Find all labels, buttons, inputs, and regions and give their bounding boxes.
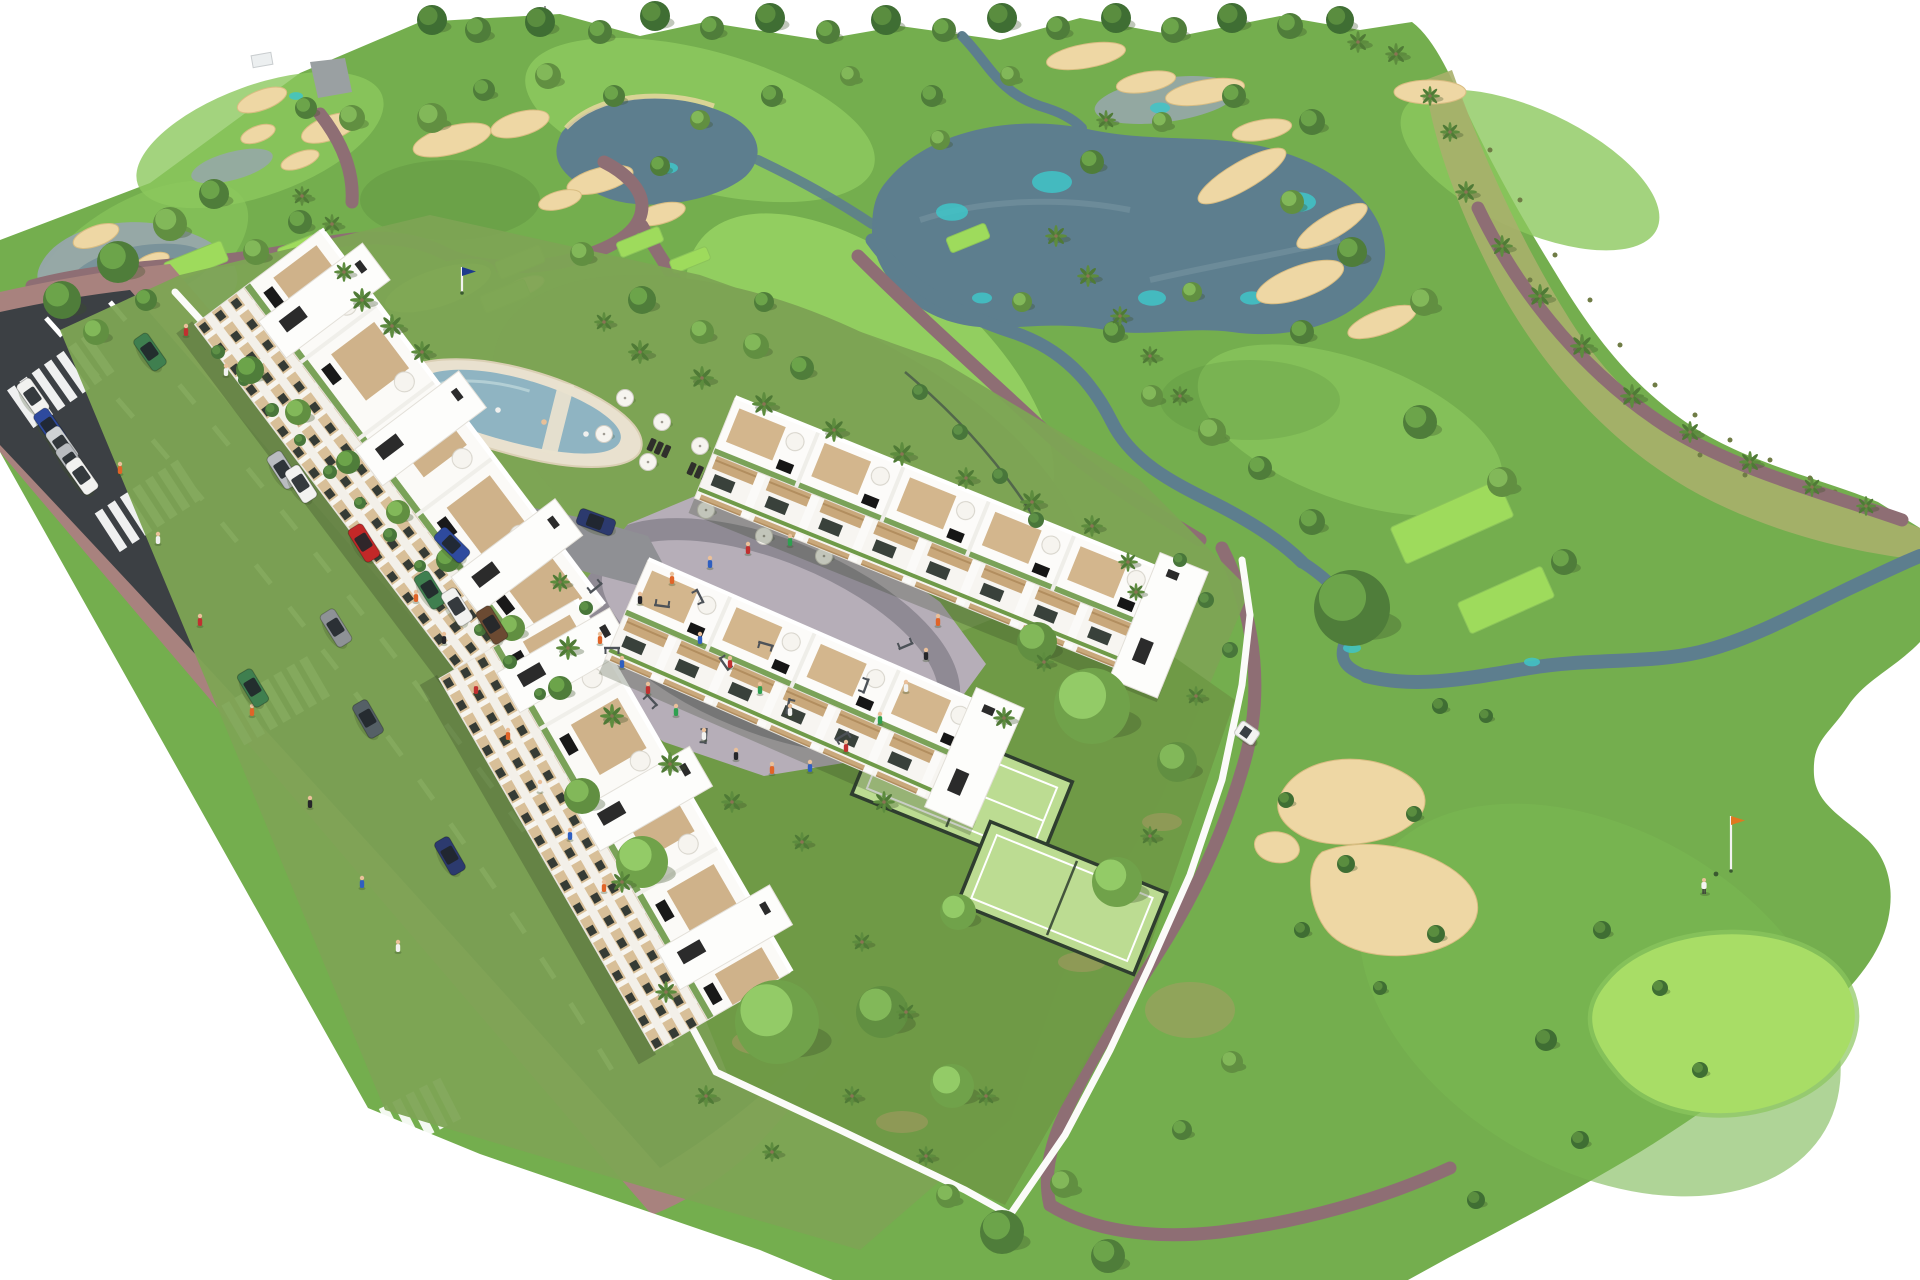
scrub (1728, 438, 1733, 443)
bush (1028, 512, 1044, 528)
bush (1173, 553, 1187, 567)
swimmer (583, 431, 589, 437)
shallow-water (1524, 658, 1540, 667)
scrub (1588, 298, 1593, 303)
scrub (1488, 148, 1493, 153)
scrub (1553, 253, 1558, 258)
bush (992, 468, 1008, 484)
shallow-water (972, 293, 992, 304)
bush (1198, 592, 1214, 608)
dirt-patch (1142, 813, 1182, 831)
bush (294, 434, 306, 446)
scrub (1693, 413, 1698, 418)
bush (534, 688, 546, 700)
bush (579, 601, 593, 615)
golf-hole (1714, 872, 1719, 877)
bush (383, 528, 397, 542)
bush (503, 655, 517, 669)
bush (265, 403, 279, 417)
dirt-patch (876, 1111, 928, 1133)
scrub (1618, 343, 1623, 348)
shallow-water (1138, 290, 1166, 305)
dirt-patch (1145, 982, 1235, 1038)
bush (323, 465, 337, 479)
bush (211, 345, 225, 359)
bush (1222, 642, 1238, 658)
scrub (1518, 198, 1523, 203)
aerial-render-canvas (0, 0, 1920, 1280)
bush (952, 424, 968, 440)
shallow-water (936, 203, 968, 221)
swimmer (495, 407, 501, 413)
bush (414, 560, 426, 572)
golf-resort-render (0, 0, 1920, 1280)
bush (912, 384, 928, 400)
swimmer (541, 419, 547, 425)
scrub (1768, 458, 1773, 463)
shallow-water (1150, 103, 1170, 114)
shallow-water (1032, 171, 1072, 193)
bush (354, 497, 366, 509)
scrub (1653, 383, 1658, 388)
